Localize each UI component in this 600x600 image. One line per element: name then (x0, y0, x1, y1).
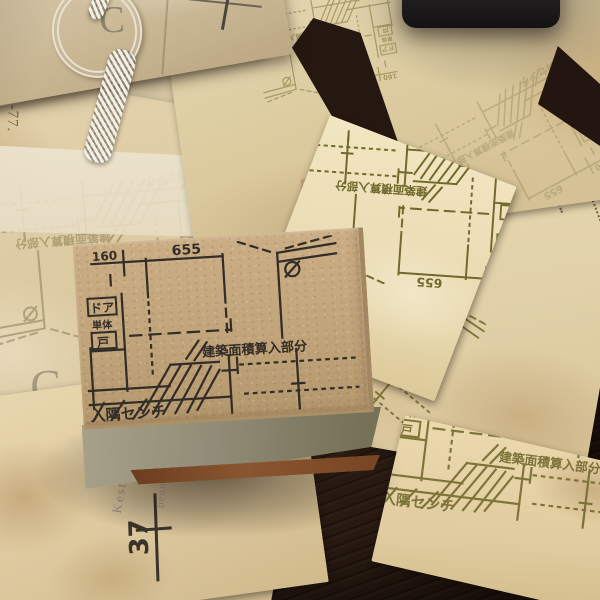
black-case (402, 0, 560, 28)
stamp-top-face (73, 227, 375, 429)
photo-scene: 160 655 ドア 単体 戸 建築面積算入部分 入隅センチ 3-77. C B… (0, 0, 600, 600)
main-stamp-print (77, 234, 363, 423)
stamp-block (58, 216, 405, 518)
package-crease (161, 0, 174, 74)
